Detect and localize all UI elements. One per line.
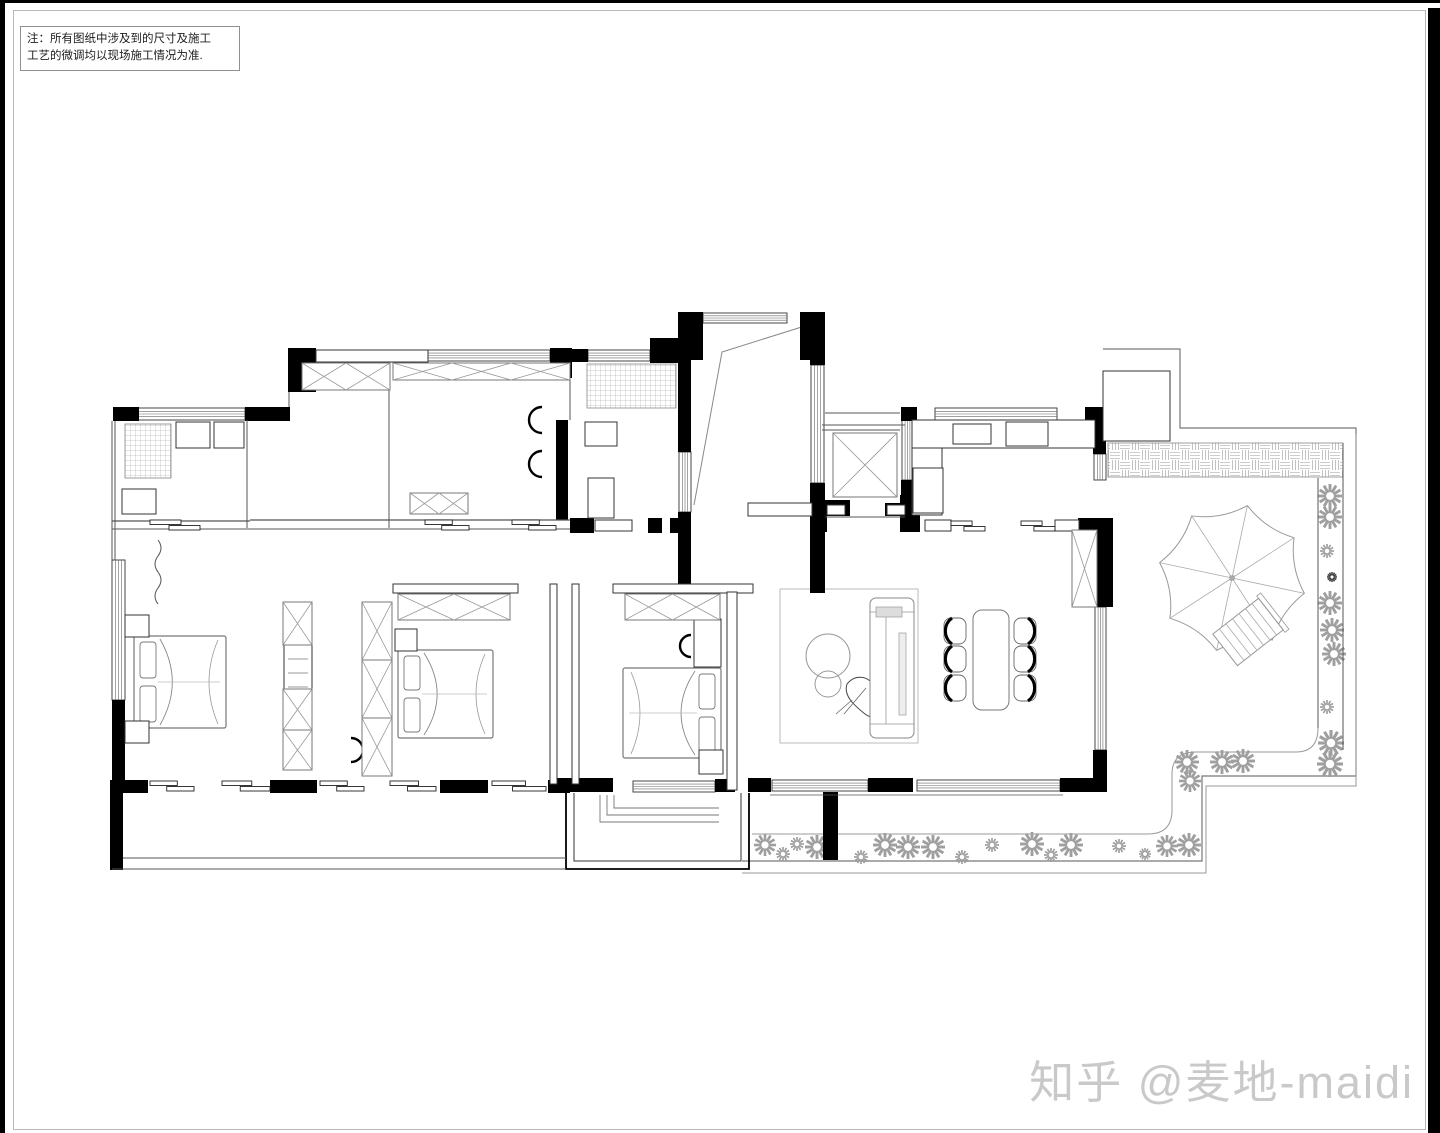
grid-hatch [125, 424, 171, 478]
dining-chair [1014, 646, 1036, 672]
door-leaf [320, 781, 347, 786]
window [588, 350, 650, 361]
plan-path-6 [574, 793, 741, 861]
door-leaf [337, 787, 364, 792]
door-leaf [390, 781, 419, 786]
x-cabinet [410, 493, 468, 514]
plant-icon [1044, 848, 1058, 862]
wall-segment [113, 407, 139, 421]
window [1094, 454, 1106, 480]
door-leaf [1021, 521, 1042, 526]
fixture-rect [550, 584, 557, 784]
sliding-door [390, 781, 436, 791]
wall-segment [812, 500, 827, 532]
fixture-rect [595, 520, 632, 531]
window [679, 452, 691, 512]
plan-path-9 [614, 795, 719, 808]
fixture-rect [393, 584, 518, 593]
plant-icon [1139, 848, 1151, 860]
wall-segment [110, 790, 123, 870]
wall-segment [823, 792, 838, 860]
plant-icon [854, 850, 868, 864]
plant-icon [985, 838, 999, 852]
fixture-rect [125, 721, 149, 743]
window [935, 408, 1057, 420]
fixture-rect [316, 350, 428, 362]
wall-segment [1060, 778, 1107, 792]
c-fixture [529, 451, 542, 477]
weave-hatch [1108, 443, 1343, 477]
circle-detail [815, 671, 841, 697]
plant-icon [1318, 484, 1342, 508]
door-leaf [240, 787, 270, 792]
x-cabinet [283, 602, 312, 645]
plant-icon [776, 847, 790, 861]
plant-icon [790, 837, 804, 851]
door-leaf [964, 527, 985, 532]
door-leaf [442, 526, 469, 531]
plan-path-0 [694, 325, 808, 505]
c-fixture [680, 635, 691, 657]
fixture-rect [925, 520, 951, 531]
x-cabinet [362, 602, 392, 660]
fixture-rect [395, 629, 417, 651]
wall-segment [112, 700, 125, 792]
fixture-rect [588, 478, 614, 518]
plant-icon [955, 850, 969, 864]
fixture-rect [1055, 520, 1079, 531]
door-leaf [150, 781, 177, 786]
window [1095, 607, 1106, 750]
c-fixture [351, 738, 363, 762]
bed [623, 668, 721, 758]
watermark: 知乎 @麦地-maidi [1029, 1046, 1414, 1111]
fixture-rect [1006, 422, 1048, 446]
door-leaf [492, 781, 525, 786]
cabinet-frame [398, 594, 510, 620]
plant-icon [1179, 770, 1201, 792]
dining-chair [1014, 675, 1036, 701]
sliding-door [150, 781, 194, 791]
fixture-rect [214, 422, 244, 448]
wall-segment [440, 780, 488, 793]
fixture-rect [887, 505, 905, 515]
door-leaf [513, 787, 546, 792]
wall-segment [868, 778, 913, 792]
window [917, 780, 1060, 791]
sliding-door [320, 781, 364, 791]
x-cabinet [1072, 530, 1097, 607]
plant-icon [1177, 833, 1201, 857]
plant-icon [754, 834, 776, 856]
plant-icon [1112, 839, 1126, 853]
plant-icon [1327, 572, 1337, 582]
window [703, 313, 787, 323]
pillow [404, 698, 420, 732]
fixture-rect [572, 584, 579, 784]
plan-path-7 [600, 795, 719, 822]
door-leaf [167, 787, 194, 792]
console [899, 633, 906, 715]
wall-segment [557, 778, 613, 792]
door-leaf [169, 526, 200, 531]
fixture-rect [694, 619, 721, 667]
window [811, 365, 824, 483]
plant-icon [1210, 750, 1234, 774]
door-leaf [951, 521, 972, 526]
fixture-rect [176, 422, 210, 448]
sofa [870, 598, 914, 738]
x-cabinet [393, 363, 570, 380]
sofa-pillow [876, 607, 902, 617]
plant-icon [1231, 749, 1255, 773]
cabinet-frame [625, 594, 720, 620]
bowl [529, 407, 542, 433]
plant-icon [1322, 642, 1346, 666]
sliding-door [222, 781, 270, 791]
x-cabinet [625, 594, 720, 620]
wall-segment [245, 407, 290, 421]
wall-segment [810, 323, 825, 365]
door-leaf [407, 787, 436, 792]
fixture-rect [827, 505, 845, 515]
sliding-door [951, 521, 985, 531]
plant-icon [1318, 505, 1342, 529]
plant-icon [1320, 618, 1344, 642]
fixture-rect [953, 424, 991, 444]
bed [134, 636, 226, 728]
x-cabinet [833, 433, 897, 497]
pillow [140, 642, 156, 678]
cabinet-frame [302, 363, 390, 390]
plant-icon [1156, 835, 1178, 857]
x-cabinet [362, 660, 392, 718]
plan-path-5 [566, 793, 749, 869]
bed [398, 650, 493, 738]
x-cabinet [362, 718, 392, 776]
wall-segment [678, 312, 703, 360]
window [772, 780, 868, 791]
wall-segment [560, 349, 588, 362]
plant-icon [873, 833, 897, 857]
cabinet-frame [410, 493, 468, 514]
dining-chair [1014, 618, 1036, 644]
plant-icon [1320, 700, 1334, 714]
plan-path-4 [155, 540, 161, 604]
x-cabinet [283, 689, 312, 730]
sliding-door [1021, 521, 1055, 531]
plant-icon [1175, 750, 1199, 774]
wall-segment [670, 518, 690, 533]
plant-icon [1020, 832, 1044, 856]
dining-chair [944, 618, 966, 644]
window [902, 420, 913, 480]
plant-icon [921, 835, 945, 859]
wall-segment [678, 360, 691, 452]
door-leaf [150, 520, 181, 525]
fixture-rect [125, 615, 149, 637]
plant-icon [1318, 591, 1342, 615]
drawing-sheet: { "note": { "line1": "注：所有图纸中涉及到的尺寸及施工",… [0, 0, 1440, 1133]
door-leaf [425, 520, 452, 525]
wall-segment [270, 780, 317, 793]
bowl [680, 635, 691, 657]
x-cabinet [283, 730, 312, 770]
floor-plan-canvas [0, 0, 1440, 1133]
x-cabinet [302, 363, 390, 390]
fixture-rect [284, 645, 312, 689]
window [633, 781, 715, 792]
x-cabinet [398, 594, 510, 620]
window [112, 560, 125, 700]
dining-chair [944, 646, 966, 672]
plant-icon [1317, 751, 1343, 777]
wall-segment [1097, 545, 1113, 607]
pillow [699, 717, 715, 752]
dining-chair [944, 675, 966, 701]
door-leaf [512, 520, 539, 525]
wall-segment [901, 407, 917, 421]
wall-segment [650, 338, 680, 363]
bowl [529, 451, 542, 477]
fixture-rect [699, 750, 723, 774]
wall-segment [648, 518, 662, 533]
plant-icon [1320, 544, 1334, 558]
plan-path-11 [836, 688, 866, 714]
plant-icon [896, 835, 920, 859]
wall-segment [748, 778, 771, 792]
fixture-rect [912, 420, 1095, 448]
c-fixture [529, 407, 542, 433]
sliding-door [492, 781, 546, 791]
grid-hatch [587, 364, 676, 408]
fixture-rect [727, 592, 737, 790]
wall-segment [810, 483, 825, 593]
fixture-rect [122, 489, 156, 514]
dining-set [944, 610, 1036, 710]
window [137, 408, 245, 420]
fixture-rect [585, 422, 617, 446]
door-leaf [529, 526, 556, 531]
wall-segment [570, 518, 594, 533]
pillow [404, 656, 420, 690]
plant-icon [1059, 833, 1083, 857]
dining-table [973, 610, 1009, 710]
wall-segment [110, 780, 148, 793]
sofa-frame [870, 598, 914, 738]
fixture-rect [1103, 371, 1170, 441]
door-leaf [222, 781, 252, 786]
pillow [140, 686, 156, 722]
door-leaf [1034, 527, 1055, 532]
plan-path-8 [607, 795, 719, 815]
wall-segment [556, 420, 568, 520]
window [428, 350, 550, 361]
fixture-rect [913, 468, 943, 513]
bowl [351, 738, 363, 762]
pillow [699, 674, 715, 709]
fixture-rect [748, 503, 812, 516]
